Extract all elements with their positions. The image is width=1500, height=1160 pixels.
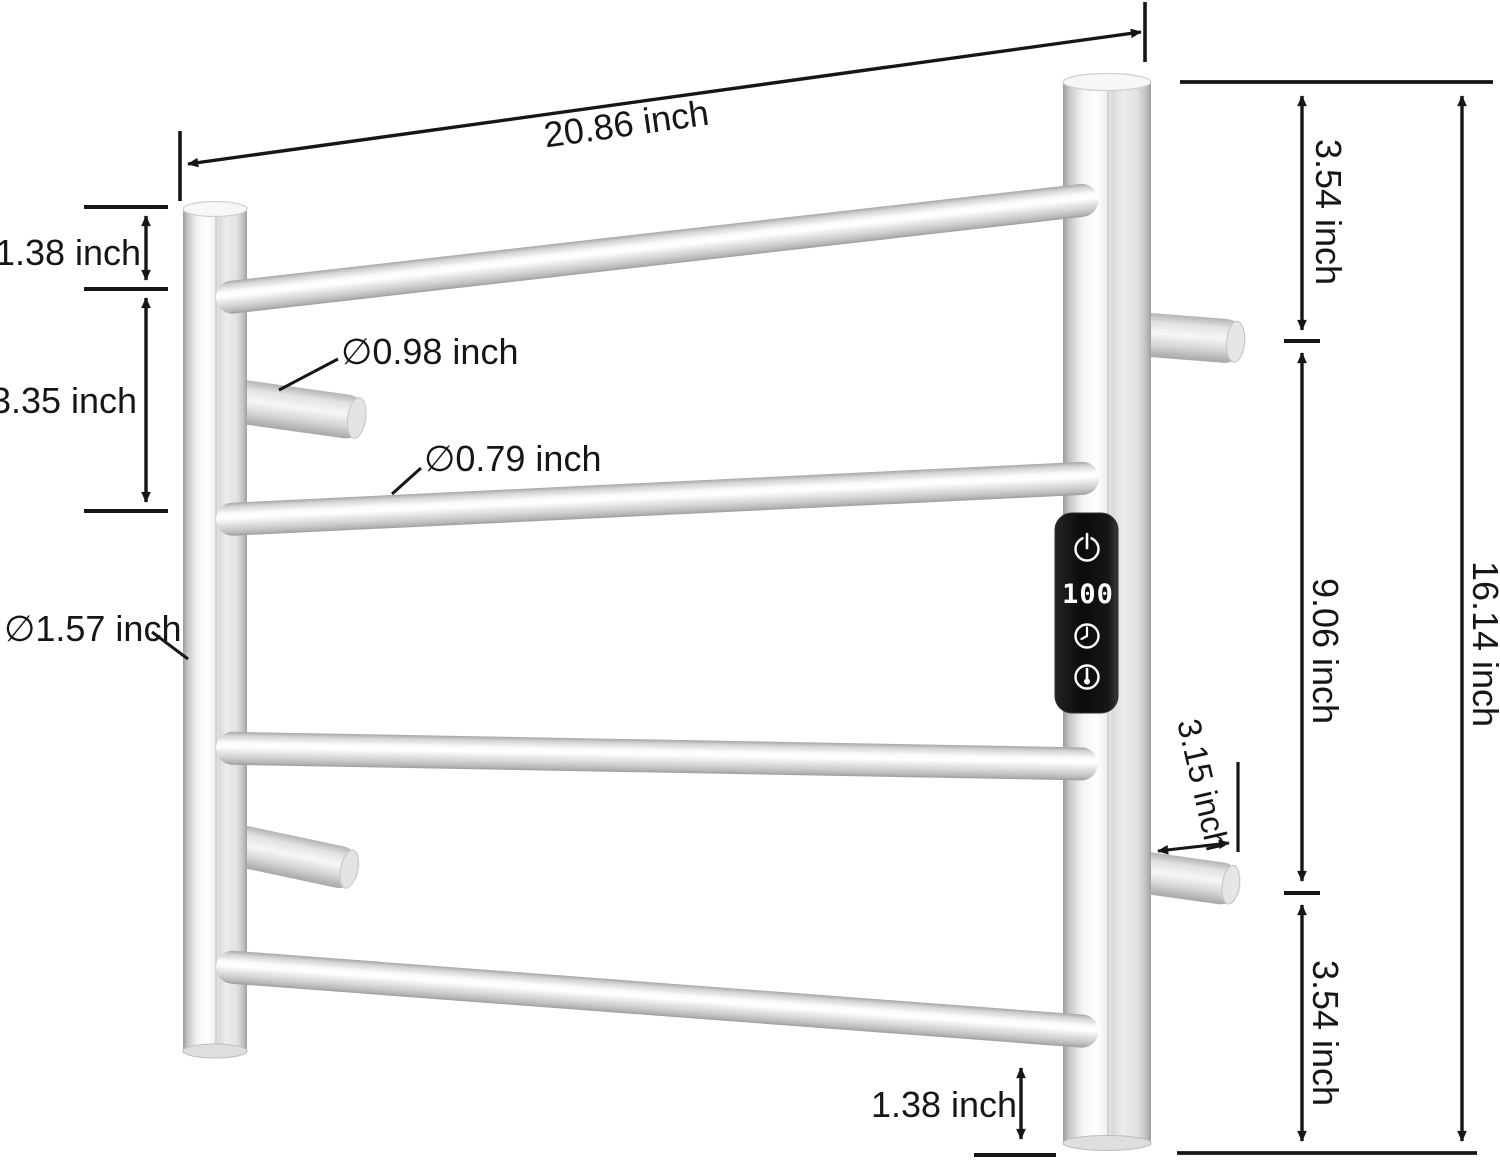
- rail-1: [214, 182, 1100, 315]
- left-post: [183, 202, 247, 1059]
- rail-3: [216, 732, 1098, 781]
- leader-rail-diameter: [392, 468, 421, 494]
- diagram-canvas: 100: [0, 0, 1500, 1160]
- label-rail-spacing: 3.35 inch: [0, 380, 137, 421]
- label-hook-diameter: ∅0.98 inch: [341, 331, 518, 372]
- label-post-diameter: ∅1.57 inch: [4, 608, 181, 649]
- label-right-bottom-section: 3.54 inch: [1305, 960, 1346, 1106]
- leader-hook-diameter: [279, 359, 338, 390]
- label-top-rail-offset: 1.38 inch: [0, 232, 141, 273]
- label-right-top-section: 3.54 inch: [1308, 139, 1349, 285]
- towel-rack: 100: [183, 74, 1247, 1151]
- rail-2: [215, 461, 1100, 536]
- towel-warmer-dimension-diagram: 100: [0, 0, 1500, 1160]
- label-right-middle-section: 9.06 inch: [1305, 578, 1346, 724]
- label-rail-diameter: ∅0.79 inch: [424, 438, 601, 479]
- label-bottom-rail-offset: 1.38 inch: [871, 1084, 1017, 1125]
- label-bracket-depth: 3.15 inch: [1170, 715, 1236, 854]
- led-display: 100: [1062, 579, 1114, 610]
- label-overall-height: 16.14 inch: [1465, 561, 1500, 727]
- label-overall-width: 20.86 inch: [541, 92, 711, 156]
- rail-4: [215, 950, 1100, 1049]
- control-panel: 100: [1055, 513, 1118, 713]
